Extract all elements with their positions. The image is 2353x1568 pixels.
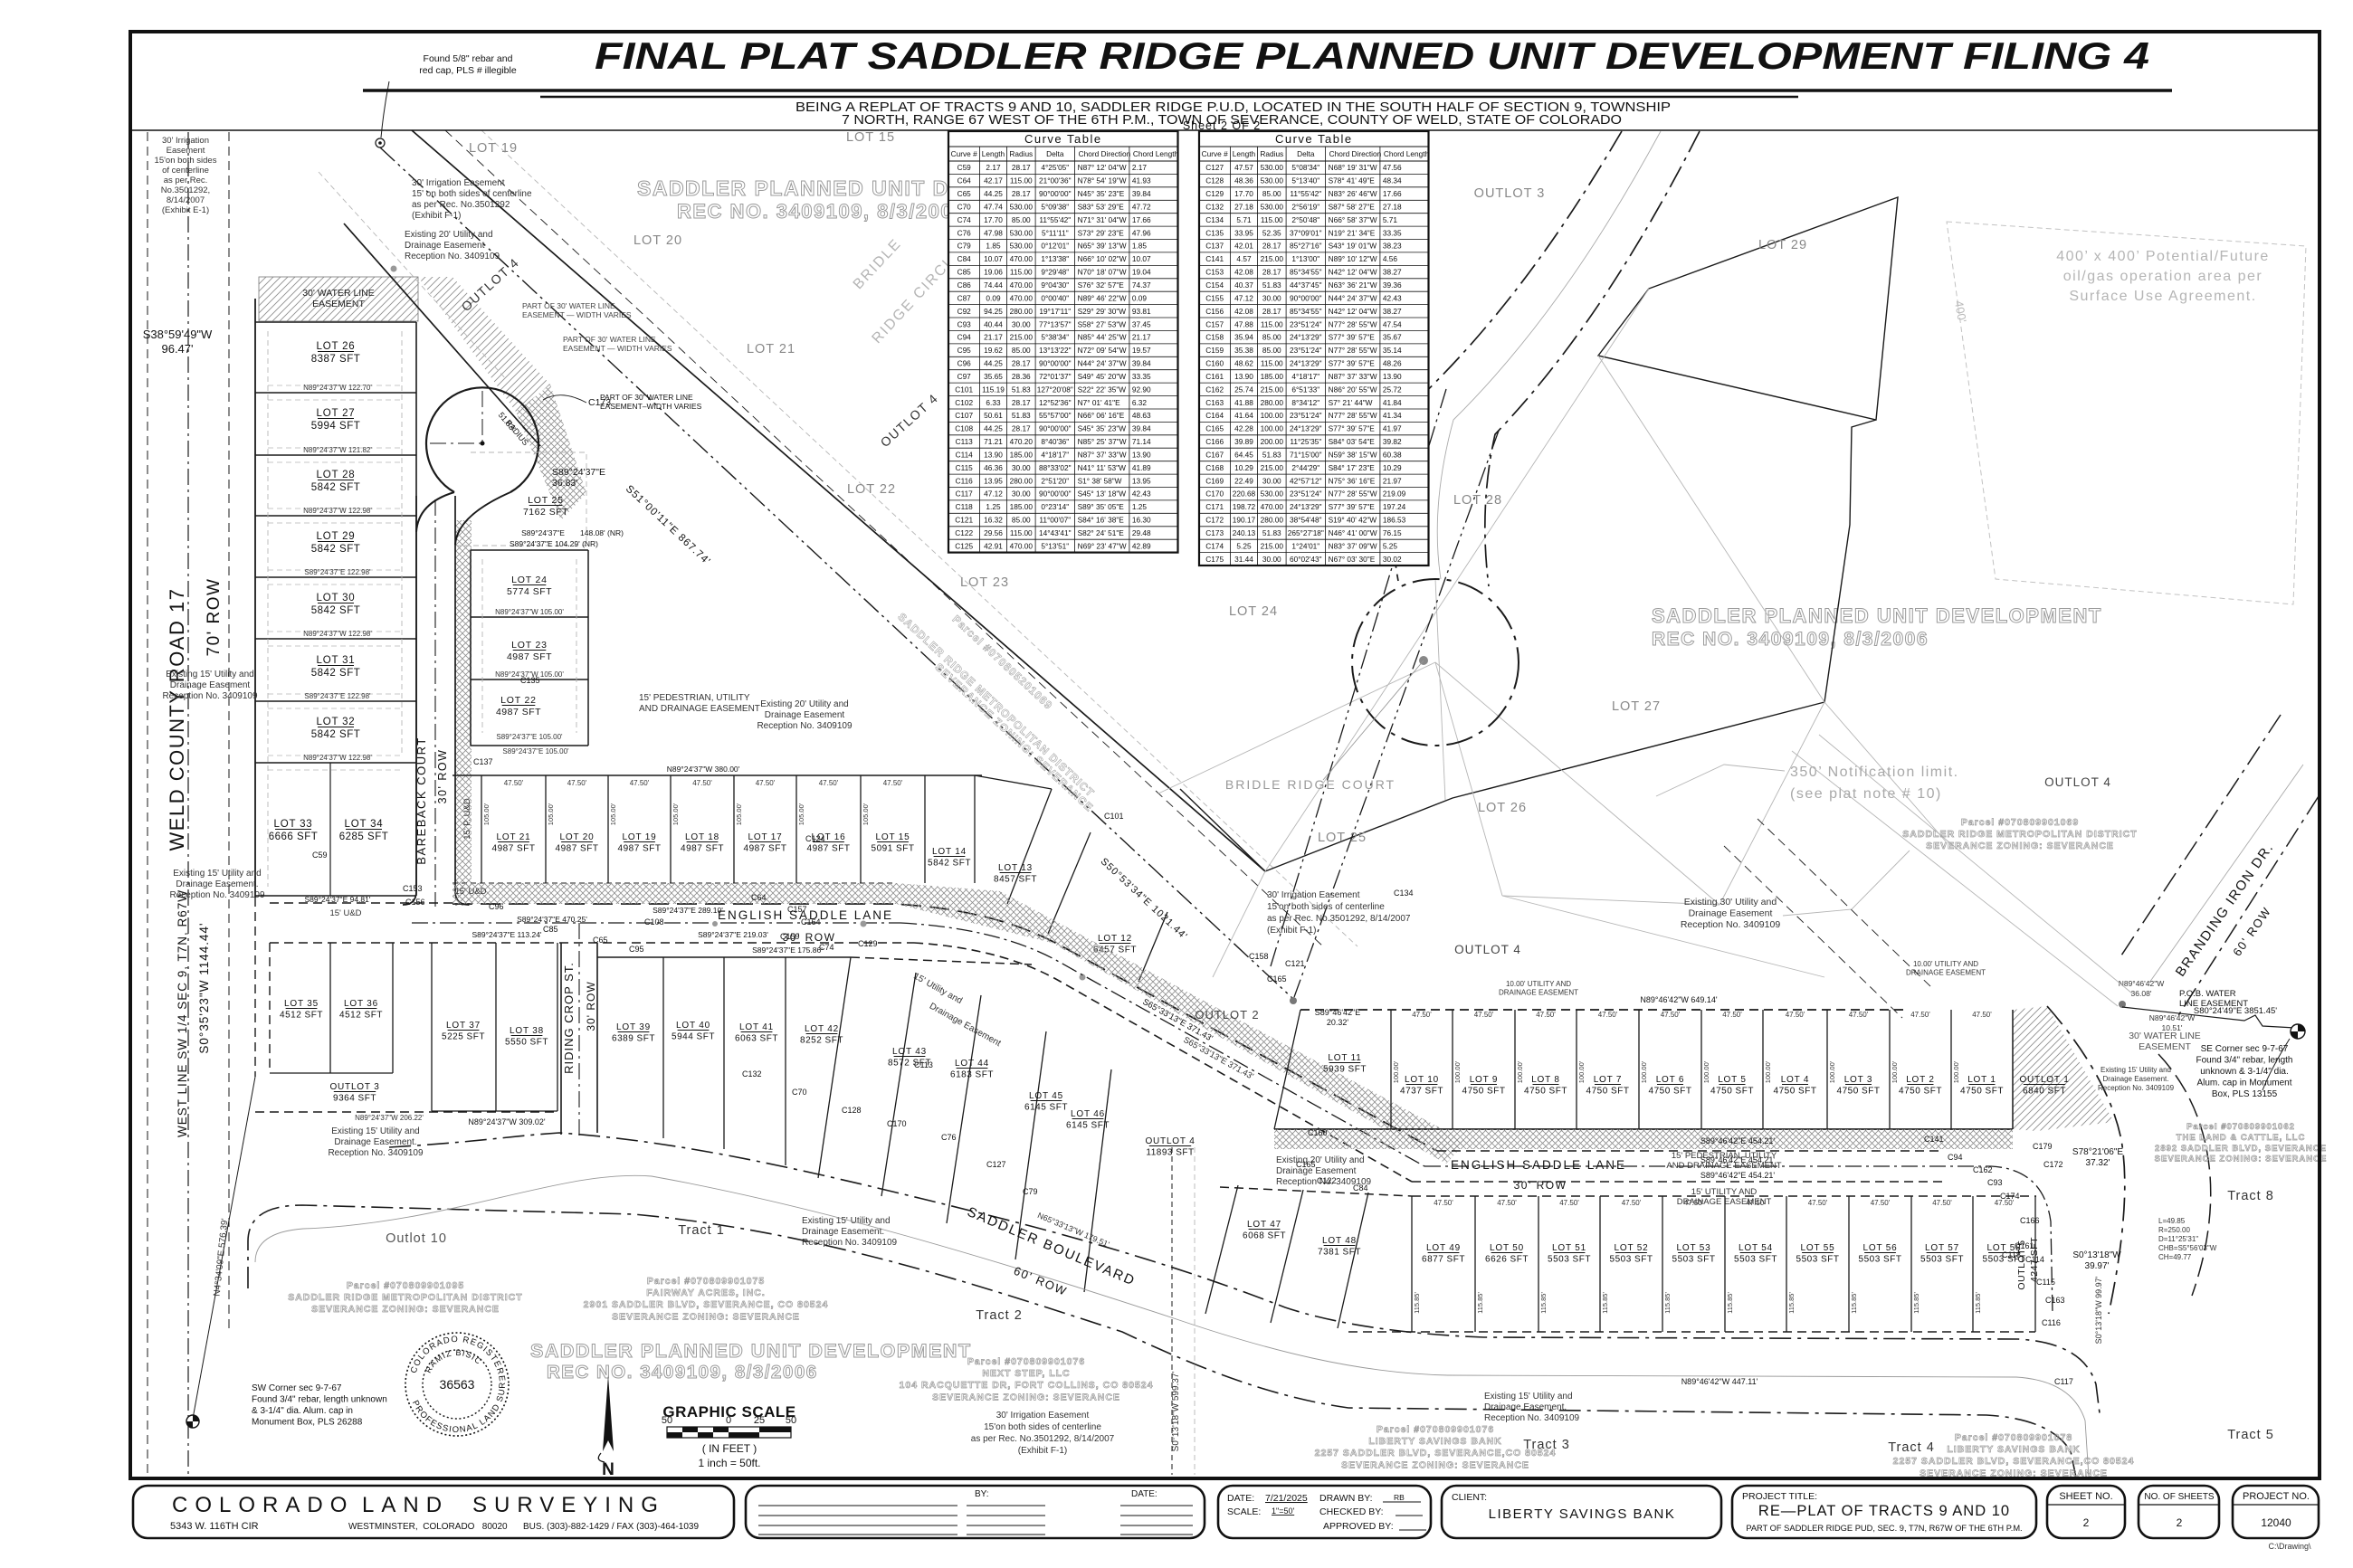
svg-text:41.84: 41.84 [1383, 398, 1402, 407]
svg-text:13°13'22": 13°13'22" [1039, 346, 1072, 355]
svg-text:OUTLOT 3: OUTLOT 3 [1474, 186, 1546, 201]
svg-text:5°13'51": 5°13'51" [1041, 541, 1069, 550]
svg-text:13.90: 13.90 [1132, 451, 1151, 460]
svg-text:47.50': 47.50' [1434, 1199, 1453, 1207]
svg-text:47.50': 47.50' [1722, 1011, 1742, 1019]
svg-text:LOT 56: LOT 56 [1863, 1243, 1898, 1253]
svg-text:N77° 28' 55"W: N77° 28' 55"W [1329, 346, 1377, 355]
svg-text:11893 SFT: 11893 SFT [1146, 1148, 1194, 1158]
svg-text:Parcel #070809901069: Parcel #070809901069 [1961, 817, 2079, 828]
svg-text:Curve #: Curve # [1202, 149, 1228, 158]
svg-text:4512 SFT: 4512 SFT [339, 1011, 383, 1021]
svg-text:39.97': 39.97' [2085, 1261, 2110, 1271]
svg-text:LOT 41: LOT 41 [739, 1022, 774, 1032]
svg-text:200.00: 200.00 [1261, 437, 1284, 446]
svg-text:21.17: 21.17 [984, 333, 1003, 342]
svg-text:42.89: 42.89 [1132, 541, 1151, 550]
svg-text:470.20: 470.20 [1010, 437, 1034, 446]
svg-text:115.00: 115.00 [1010, 176, 1033, 185]
svg-text:C141: C141 [1205, 254, 1224, 263]
svg-text:9364 SFT: 9364 SFT [333, 1094, 376, 1104]
svg-text:AND DRAINAGE EASEMENT: AND DRAINAGE EASEMENT [1666, 1161, 1781, 1171]
svg-text:C166: C166 [1205, 437, 1224, 446]
svg-text:40.44: 40.44 [984, 319, 1003, 328]
svg-text:N89° 46' 22"W: N89° 46' 22"W [1078, 293, 1127, 302]
svg-text:530.00: 530.00 [1010, 242, 1034, 251]
svg-text:60°02'43": 60°02'43" [1290, 555, 1322, 564]
svg-text:115.85': 115.85' [1850, 1292, 1858, 1314]
svg-text:C97: C97 [957, 372, 972, 381]
svg-text:C86: C86 [957, 280, 972, 290]
svg-text:(Exhibit F-1): (Exhibit F-1) [1018, 1446, 1067, 1456]
svg-text:5842 SFT: 5842 SFT [311, 668, 361, 679]
svg-text:S77° 39' 57"E: S77° 39' 57"E [1329, 424, 1376, 433]
svg-text:50: 50 [662, 1415, 672, 1426]
svg-text:400’ x 400’ Potential/Future: 400’ x 400’ Potential/Future [2056, 249, 2270, 264]
svg-text:C135: C135 [520, 676, 540, 685]
svg-text:Reception No. 3409109: Reception No. 3409109 [2098, 1084, 2175, 1092]
svg-text:C79: C79 [957, 242, 972, 251]
svg-text:N85° 25' 37"W: N85° 25' 37"W [1078, 437, 1127, 446]
svg-text:SEVERANCE ZONING: SEVERANCE: SEVERANCE ZONING: SEVERANCE [2155, 1155, 2328, 1164]
svg-text:7381 SFT: 7381 SFT [1318, 1248, 1361, 1258]
svg-text:64.45: 64.45 [1234, 451, 1253, 460]
svg-text:13.90: 13.90 [1383, 372, 1402, 381]
svg-text:C113: C113 [956, 437, 974, 446]
svg-text:5503 SFT: 5503 SFT [1548, 1255, 1591, 1265]
svg-text:2: 2 [2083, 1516, 2090, 1529]
svg-text:Monument Box, PLS 26288: Monument Box, PLS 26288 [252, 1418, 363, 1428]
svg-text:100.00': 100.00' [1891, 1060, 1899, 1083]
svg-text:LOT 38: LOT 38 [510, 1026, 544, 1036]
svg-text:C65: C65 [593, 936, 608, 945]
svg-text:Tract 2: Tract 2 [976, 1308, 1023, 1323]
svg-text:240.13: 240.13 [1233, 528, 1256, 537]
svg-text:47.50': 47.50' [1849, 1011, 1869, 1019]
svg-text:6.32: 6.32 [1132, 398, 1148, 407]
svg-text:215.00: 215.00 [1261, 254, 1284, 263]
svg-text:C134: C134 [1394, 889, 1414, 898]
svg-text:530.00: 530.00 [1261, 176, 1284, 185]
svg-text:S43° 19' 01"W: S43° 19' 01"W [1329, 242, 1377, 251]
svg-text:Found 5/8" rebar and: Found 5/8" rebar and [424, 53, 513, 64]
svg-text:115.85': 115.85' [1476, 1292, 1484, 1314]
svg-text:LIBERTY SAVINGS BANK: LIBERTY SAVINGS BANK [1489, 1506, 1676, 1522]
svg-text:470.00: 470.00 [1010, 254, 1034, 263]
svg-text:LOT 21: LOT 21 [747, 342, 795, 356]
svg-text:SE Corner sec 9-7-67: SE Corner sec 9-7-67 [2201, 1044, 2289, 1054]
svg-text:1 inch = 50ft.: 1 inch = 50ft. [698, 1457, 760, 1469]
svg-text:LOT 2: LOT 2 [1906, 1075, 1935, 1085]
svg-text:(Exhibit E-1): (Exhibit E-1) [162, 205, 209, 215]
svg-text:C165: C165 [1296, 1160, 1316, 1169]
svg-text:LOT 55: LOT 55 [1801, 1243, 1835, 1253]
svg-text:185.00: 185.00 [1261, 372, 1284, 381]
svg-text:SADDLER RIDGE METROPOLITAN DIS: SADDLER RIDGE METROPOLITAN DISTRICT [1902, 829, 2137, 840]
svg-text:24°13'29": 24°13'29" [1290, 424, 1322, 433]
svg-text:219.09: 219.09 [1383, 489, 1406, 499]
svg-text:S89°24'37"E 105.00': S89°24'37"E 105.00' [502, 747, 569, 755]
svg-text:C157: C157 [787, 905, 807, 914]
svg-text:70' ROW: 70' ROW [205, 578, 224, 657]
svg-text:42.17: 42.17 [984, 176, 1003, 185]
svg-text:47.50': 47.50' [1786, 1011, 1805, 1019]
svg-text:LOT 33: LOT 33 [274, 819, 313, 830]
svg-text:WESTMINSTER, COLORADO 80020: WESTMINSTER, COLORADO 80020 [348, 1522, 508, 1532]
svg-text:28.17: 28.17 [1012, 163, 1031, 172]
svg-text:33.35: 33.35 [1132, 372, 1151, 381]
svg-text:C96: C96 [489, 902, 504, 911]
svg-text:30.00: 30.00 [1262, 476, 1281, 485]
svg-text:90°00'00": 90°00'00" [1290, 293, 1322, 302]
svg-text:N: N [602, 1460, 614, 1479]
svg-text:7162 SFT: 7162 SFT [523, 507, 568, 518]
svg-text:5842 SFT: 5842 SFT [311, 482, 361, 493]
svg-text:47.50': 47.50' [1910, 1011, 1930, 1019]
svg-text:215.00: 215.00 [1261, 463, 1284, 472]
svg-text:Box, PLS 13155: Box, PLS 13155 [2212, 1089, 2278, 1099]
svg-text:Length: Length [1233, 149, 1256, 158]
svg-text:C107: C107 [955, 411, 973, 420]
svg-text:LAND: LAND [362, 1493, 449, 1517]
svg-text:15'on both sides of center: 15'on both sides of centerline [1267, 902, 1385, 912]
svg-text:N89°24'37"W 121.82': N89°24'37"W 121.82' [303, 446, 372, 454]
svg-text:Chord Length: Chord Length [1133, 149, 1179, 158]
svg-text:LOT 32: LOT 32 [317, 717, 356, 727]
svg-text:4°18'17": 4°18'17" [1291, 372, 1319, 381]
svg-text:N69° 23' 47"W: N69° 23' 47"W [1078, 541, 1127, 550]
svg-text:S0°35'23"W 1144.44': S0°35'23"W 1144.44' [197, 922, 211, 1053]
svg-text:N86° 20' 55"W: N86° 20' 55"W [1329, 385, 1377, 394]
svg-text:10.07: 10.07 [984, 254, 1003, 263]
svg-text:N78° 54' 19"W: N78° 54' 19"W [1078, 176, 1127, 185]
svg-text:Easement: Easement [167, 146, 205, 156]
svg-text:Drainage Easement: Drainage Easement [1689, 908, 1773, 919]
svg-text:4750 SFT: 4750 SFT [1462, 1087, 1506, 1097]
svg-text:2257 SADDLER BLVD, SEVERANCE,C: 2257 SADDLER BLVD, SEVERANCE,CO 80524 [1893, 1456, 2135, 1467]
svg-text:LOT 57: LOT 57 [1925, 1243, 1959, 1253]
svg-text:5550 SFT: 5550 SFT [505, 1038, 548, 1048]
svg-text:S89°46'42"E 454.21': S89°46'42"E 454.21' [1700, 1171, 1776, 1180]
svg-text:C157: C157 [1205, 319, 1224, 328]
svg-text:C160: C160 [1308, 1128, 1328, 1137]
svg-text:C118: C118 [956, 502, 974, 511]
svg-text:105.00': 105.00' [862, 803, 870, 825]
svg-text:Radius: Radius [1260, 149, 1283, 158]
svg-text:C122: C122 [955, 528, 973, 537]
svg-text:Chord Direction: Chord Direction [1329, 149, 1382, 158]
svg-text:30.02: 30.02 [1383, 555, 1402, 564]
svg-text:C161: C161 [2015, 1241, 2034, 1250]
svg-text:2257 SADDLER BLVD, SEVERANCE,C: 2257 SADDLER BLVD, SEVERANCE,CO 80524 [1315, 1448, 1557, 1459]
svg-text:15'on both sides: 15'on both sides [155, 156, 217, 166]
svg-text:47.50': 47.50' [1684, 1199, 1704, 1207]
svg-text:48.62: 48.62 [1234, 359, 1253, 368]
svg-text:8°40'36": 8°40'36" [1041, 437, 1069, 446]
svg-text:30.00: 30.00 [1012, 463, 1031, 472]
svg-text:30' Irrigation Easement: 30' Irrigation Easement [996, 1411, 1090, 1421]
svg-text:41.97: 41.97 [1383, 424, 1402, 433]
svg-text:S22° 22' 35"W: S22° 22' 35"W [1078, 385, 1127, 394]
svg-text:4750 SFT: 4750 SFT [1837, 1087, 1881, 1097]
svg-text:6626 SFT: 6626 SFT [1485, 1255, 1529, 1265]
svg-text:S77° 39' 57"E: S77° 39' 57"E [1329, 359, 1376, 368]
svg-text:C127: C127 [1205, 163, 1224, 172]
svg-text:71.21: 71.21 [984, 437, 1003, 446]
svg-text:190.17: 190.17 [1233, 516, 1256, 525]
svg-text:185.00: 185.00 [1010, 502, 1034, 511]
svg-text:15' PEDESTRIAN, UTILITY: 15' PEDESTRIAN, UTILITY [639, 693, 750, 703]
svg-text:5842 SFT: 5842 SFT [311, 729, 361, 740]
svg-text:C94: C94 [957, 333, 972, 342]
svg-text:29.48: 29.48 [1132, 528, 1151, 537]
svg-text:C162: C162 [1205, 385, 1224, 394]
svg-text:55°57'00": 55°57'00" [1039, 411, 1072, 420]
svg-text:C96: C96 [957, 359, 972, 368]
svg-text:C79: C79 [1023, 1187, 1038, 1196]
svg-text:LOT 22: LOT 22 [847, 482, 896, 497]
svg-text:115.85': 115.85' [1787, 1292, 1796, 1314]
svg-text:198.72: 198.72 [1233, 502, 1256, 511]
svg-text:N59° 38' 15"W: N59° 38' 15"W [1329, 451, 1377, 460]
svg-text:74.37: 74.37 [1132, 280, 1151, 290]
svg-text:42.01: 42.01 [1234, 242, 1253, 251]
svg-text:105.00': 105.00' [547, 803, 555, 825]
svg-text:38.27: 38.27 [1383, 307, 1402, 316]
svg-text:48.63: 48.63 [1132, 411, 1151, 420]
svg-text:85.00: 85.00 [1262, 333, 1281, 342]
svg-text:115.85': 115.85' [1912, 1292, 1920, 1314]
svg-text:C122: C122 [1317, 1176, 1337, 1185]
svg-text:SEVERANCE ZONING: SEVERANCE: SEVERANCE ZONING: SEVERANCE [1926, 841, 2114, 851]
svg-text:OUTLOT 4: OUTLOT 4 [1145, 1136, 1195, 1146]
svg-text:27.18: 27.18 [1383, 203, 1402, 212]
svg-text:LOT 53: LOT 53 [1677, 1243, 1711, 1253]
svg-text:C164: C164 [1205, 411, 1224, 420]
svg-text:15' on both sides of cent: 15' on both sides of centerline [412, 189, 532, 199]
svg-text:S77° 39' 57"E: S77° 39' 57"E [1329, 502, 1376, 511]
svg-text:100.00': 100.00' [1702, 1060, 1710, 1083]
svg-text:DRAINAGE EASEMENT: DRAINAGE EASEMENT [1499, 989, 1578, 997]
svg-text:OUTLOT 4: OUTLOT 4 [2044, 775, 2111, 789]
svg-text:C167: C167 [1205, 451, 1224, 460]
svg-text:C59: C59 [957, 163, 972, 172]
svg-text:PART OF 30' WATER LINE: PART OF 30' WATER LINE [600, 393, 693, 402]
svg-text:APPROVED BY:: APPROVED BY: [1323, 1521, 1394, 1532]
svg-text:CHECKED BY:: CHECKED BY: [1319, 1506, 1384, 1517]
svg-text:24°13'29": 24°13'29" [1290, 333, 1322, 342]
svg-text:Drainage Easement: Drainage Easement [1276, 1166, 1357, 1176]
svg-text:47.88: 47.88 [1234, 319, 1253, 328]
svg-text:71°15'00": 71°15'00" [1290, 451, 1322, 460]
svg-text:CLIENT:: CLIENT: [1452, 1492, 1487, 1503]
svg-text:90°00'00": 90°00'00" [1039, 189, 1072, 198]
svg-text:Parcel #070809901076: Parcel #070809901076 [967, 1356, 1085, 1367]
svg-text:35.14: 35.14 [1383, 346, 1402, 355]
svg-text:9°29'48": 9°29'48" [1041, 268, 1069, 277]
svg-text:N89°24'37"W 122.98': N89°24'37"W 122.98' [303, 507, 372, 515]
svg-text:C87: C87 [957, 293, 972, 302]
svg-text:AND DRAINAGE EASEMENT: AND DRAINAGE EASEMENT [639, 704, 760, 714]
svg-text:51.83: 51.83 [1262, 528, 1281, 537]
svg-text:40.37: 40.37 [1234, 280, 1253, 290]
svg-text:4987 SFT: 4987 SFT [681, 844, 724, 854]
svg-text:N77° 28' 55"W: N77° 28' 55"W [1329, 489, 1377, 499]
svg-text:LOT 29: LOT 29 [317, 531, 356, 542]
svg-text:RE—PLAT OF TRACTS 9 AND 10: RE—PLAT OF TRACTS 9 AND 10 [1758, 1503, 2010, 1519]
svg-text:N89°24'37"W 206.22': N89°24'37"W 206.22' [355, 1114, 424, 1122]
svg-text:1°13'00": 1°13'00" [1291, 254, 1319, 263]
svg-text:C132: C132 [1205, 203, 1224, 212]
svg-text:13.90: 13.90 [984, 451, 1003, 460]
svg-text:N89°24'37"W 122.98': N89°24'37"W 122.98' [303, 754, 372, 762]
svg-text:REC NO. 3409109, 8/3/2006: REC NO. 3409109, 8/3/2006 [547, 1362, 818, 1383]
svg-text:30' WATER LINE: 30' WATER LINE [302, 288, 375, 299]
svg-text:6.33: 6.33 [986, 398, 1001, 407]
svg-text:10.29: 10.29 [1234, 463, 1253, 472]
svg-text:530.00: 530.00 [1010, 228, 1034, 237]
svg-text:LOT 23: LOT 23 [511, 640, 548, 651]
svg-text:100.00': 100.00' [1952, 1060, 1960, 1083]
svg-text:35.65: 35.65 [984, 372, 1003, 381]
svg-text:C156: C156 [405, 898, 425, 907]
svg-text:215.00: 215.00 [1261, 385, 1284, 394]
svg-text:23°51'24": 23°51'24" [1290, 489, 1322, 499]
svg-text:N63° 36' 21"W: N63° 36' 21"W [1329, 280, 1377, 290]
svg-text:50.61: 50.61 [984, 411, 1003, 420]
svg-text:S89°24'37"E 122.98': S89°24'37"E 122.98' [304, 692, 371, 700]
svg-text:47.50': 47.50' [1598, 1011, 1618, 1019]
svg-text:37.45: 37.45 [1132, 319, 1151, 328]
svg-text:36563: 36563 [440, 1377, 475, 1392]
svg-text:LOT 39: LOT 39 [616, 1022, 651, 1032]
svg-text:85°34'55": 85°34'55" [1290, 268, 1322, 277]
svg-text:C159: C159 [780, 932, 800, 941]
svg-text:1.85: 1.85 [1132, 242, 1148, 251]
svg-text:N44° 24' 37"W: N44° 24' 37"W [1329, 293, 1377, 302]
svg-text:47.74: 47.74 [984, 203, 1003, 212]
svg-text:5.25: 5.25 [1383, 541, 1398, 550]
svg-text:S83° 53' 29"E: S83° 53' 29"E [1078, 203, 1125, 212]
svg-text:47.57: 47.57 [1234, 163, 1253, 172]
svg-text:47.54: 47.54 [1383, 319, 1402, 328]
svg-text:C84: C84 [1353, 1183, 1368, 1193]
svg-text:100.00: 100.00 [1261, 411, 1284, 420]
svg-text:19.57: 19.57 [1132, 346, 1151, 355]
svg-text:N68° 19' 31"W: N68° 19' 31"W [1329, 163, 1377, 172]
svg-text:as per Rec. No.3501292, 8/: as per Rec. No.3501292, 8/14/2007 [1267, 914, 1411, 924]
svg-text:5503 SFT: 5503 SFT [1672, 1255, 1716, 1265]
svg-text:148.08' (NR): 148.08' (NR) [580, 528, 624, 537]
svg-text:Surface Use Agreement.: Surface Use Agreement. [2069, 289, 2256, 304]
svg-text:Alum. cap in Monument: Alum. cap in Monument [2196, 1079, 2291, 1088]
svg-text:21.97: 21.97 [1383, 476, 1402, 485]
svg-text:REC NO. 3409109, 8/3/2006: REC NO. 3409109, 8/3/2006 [677, 200, 966, 223]
svg-text:S89°24'37"E 122.98': S89°24'37"E 122.98' [304, 568, 371, 576]
svg-text:5°09'38": 5°09'38" [1041, 203, 1069, 212]
svg-text:30' Irrigation Easement: 30' Irrigation Easement [412, 178, 505, 188]
svg-text:S89°24'37"E 219.03': S89°24'37"E 219.03' [698, 930, 768, 939]
svg-text:42.43: 42.43 [1132, 489, 1151, 499]
svg-text:N45° 35' 23"E: N45° 35' 23"E [1078, 189, 1125, 198]
svg-text:C164: C164 [801, 917, 821, 927]
svg-text:Reception No. 3409109: Reception No. 3409109 [162, 691, 258, 701]
svg-text:N66° 06' 16"E: N66° 06' 16"E [1078, 411, 1125, 420]
svg-text:N77° 28' 55"W: N77° 28' 55"W [1329, 319, 1377, 328]
svg-text:47.50': 47.50' [1808, 1199, 1828, 1207]
svg-text:51.83: 51.83 [1262, 451, 1281, 460]
svg-text:LOT 10: LOT 10 [1405, 1075, 1439, 1085]
svg-text:SURVEYING: SURVEYING [472, 1493, 665, 1517]
svg-text:ENGLISH SADDLE LANE: ENGLISH SADDLE LANE [1451, 1158, 1626, 1172]
svg-text:Parcel #070809901075: Parcel #070809901075 [647, 1276, 765, 1287]
svg-text:14°43'41": 14°43'41" [1039, 528, 1072, 537]
svg-text:LOT 21: LOT 21 [497, 832, 531, 842]
svg-text:C162: C162 [1973, 1165, 1993, 1174]
svg-text:LOT 24: LOT 24 [1229, 604, 1278, 619]
svg-text:C175: C175 [1205, 555, 1224, 564]
svg-text:LOT 50: LOT 50 [1490, 1243, 1524, 1253]
svg-text:C124: C124 [805, 834, 825, 843]
svg-text:NO. OF SHEETS: NO. OF SHEETS [2144, 1492, 2215, 1502]
svg-text:5°08'34": 5°08'34" [1291, 163, 1319, 172]
svg-text:4750 SFT: 4750 SFT [1586, 1087, 1630, 1097]
svg-text:C114: C114 [956, 451, 974, 460]
svg-text:C166: C166 [2020, 1216, 2040, 1225]
svg-text:C84: C84 [957, 254, 972, 263]
svg-text:C108: C108 [644, 917, 664, 927]
svg-text:30.00: 30.00 [1262, 293, 1281, 302]
svg-text:FAIRWAY ACRES, INC.: FAIRWAY ACRES, INC. [646, 1288, 766, 1298]
svg-text:2°44'29": 2°44'29" [1291, 463, 1319, 472]
svg-text:Parcel #070809901062: Parcel #070809901062 [2186, 1122, 2295, 1132]
svg-text:LOT 34: LOT 34 [345, 819, 384, 830]
svg-text:S29° 29' 30"W: S29° 29' 30"W [1078, 307, 1127, 316]
svg-text:Tract 8: Tract 8 [2227, 1189, 2274, 1203]
svg-text:5503 SFT: 5503 SFT [1610, 1255, 1653, 1265]
svg-text:LOT 20: LOT 20 [633, 233, 682, 248]
svg-text:EASEMENT — WIDTH VARIES: EASEMENT — WIDTH VARIES [522, 310, 632, 319]
svg-text:N89°24'37"W 380.00': N89°24'37"W 380.00' [667, 765, 740, 774]
svg-text:24°13'29": 24°13'29" [1290, 502, 1322, 511]
svg-text:105.00': 105.00' [735, 803, 743, 825]
svg-text:0°23'14": 0°23'14" [1041, 502, 1069, 511]
svg-text:4987 SFT: 4987 SFT [496, 707, 541, 717]
svg-text:N87° 37' 33"W: N87° 37' 33"W [1078, 451, 1127, 460]
svg-text:( IN FEET ): ( IN FEET ) [702, 1442, 757, 1455]
svg-text:41.93: 41.93 [1132, 176, 1151, 185]
svg-text:S84° 03' 54"E: S84° 03' 54"E [1329, 437, 1376, 446]
svg-text:100.00': 100.00' [1640, 1060, 1648, 1083]
svg-text:N89°46'42"W 649.14': N89°46'42"W 649.14' [1640, 995, 1718, 1004]
svg-text:24°13'29": 24°13'29" [1290, 359, 1322, 368]
svg-text:C121: C121 [1285, 959, 1305, 968]
svg-text:5842 SFT: 5842 SFT [928, 859, 971, 869]
svg-text:280.00: 280.00 [1010, 307, 1034, 316]
svg-text:2892 SADDLER BLVD, SEVERANCE: 2892 SADDLER BLVD, SEVERANCE [2155, 1144, 2327, 1154]
svg-text:105.00': 105.00' [609, 803, 617, 825]
svg-text:115.85': 115.85' [1413, 1292, 1421, 1314]
svg-text:C64: C64 [957, 176, 972, 185]
svg-text:5503 SFT: 5503 SFT [1859, 1255, 1902, 1265]
svg-text:4512 SFT: 4512 SFT [280, 1011, 323, 1021]
svg-text:Drainage Easement.: Drainage Easement. [802, 1227, 884, 1237]
svg-text:S0°13'18"W 599.37': S0°13'18"W 599.37' [1171, 1372, 1181, 1452]
svg-text:85°34'55": 85°34'55" [1290, 307, 1322, 316]
svg-text:D=11°25'31": D=11°25'31" [2158, 1235, 2198, 1243]
svg-text:28.17: 28.17 [1012, 424, 1031, 433]
svg-text:Drainage Easement.: Drainage Easement. [1484, 1402, 1567, 1412]
